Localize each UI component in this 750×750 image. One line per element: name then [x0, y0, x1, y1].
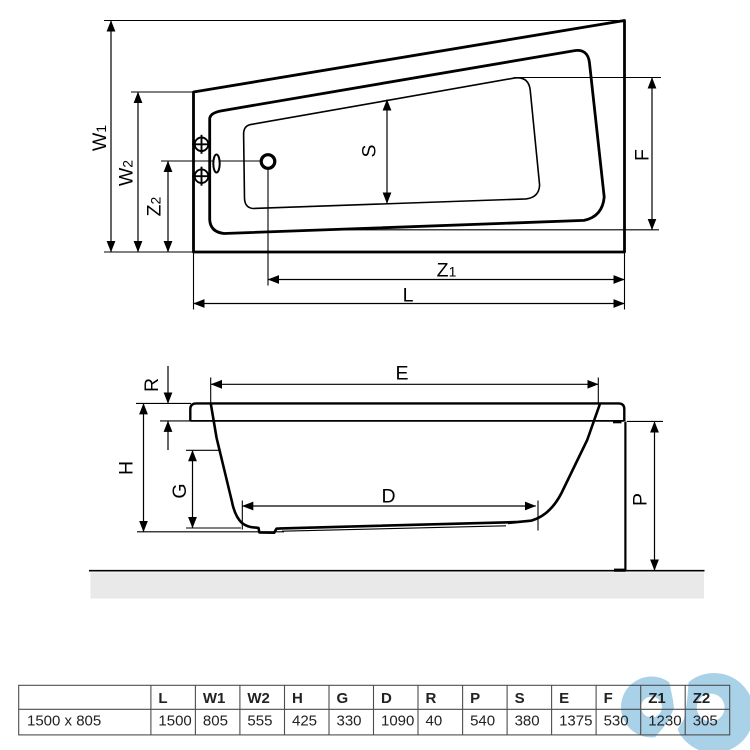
- svg-text:W1: W1: [203, 690, 226, 707]
- svg-text:S: S: [359, 144, 381, 157]
- svg-text:425: 425: [292, 713, 317, 730]
- svg-text:Z1: Z1: [648, 690, 666, 707]
- svg-text:G: G: [337, 690, 349, 707]
- svg-text:E: E: [559, 690, 569, 707]
- svg-text:L: L: [403, 285, 414, 307]
- svg-text:330: 330: [337, 713, 362, 730]
- svg-text:W1: W1: [89, 125, 111, 151]
- svg-text:E: E: [395, 363, 408, 385]
- svg-text:555: 555: [247, 713, 272, 730]
- svg-text:40: 40: [426, 713, 443, 730]
- svg-text:H: H: [292, 690, 303, 707]
- svg-text:1500: 1500: [158, 713, 191, 730]
- svg-text:805: 805: [203, 713, 228, 730]
- svg-text:P: P: [470, 690, 480, 707]
- svg-text:Z2: Z2: [693, 690, 711, 707]
- svg-text:1375: 1375: [559, 713, 592, 730]
- svg-text:G: G: [169, 483, 191, 498]
- svg-text:L: L: [158, 690, 167, 707]
- svg-text:W2: W2: [115, 160, 137, 186]
- svg-text:1090: 1090: [381, 713, 414, 730]
- svg-text:R: R: [426, 690, 437, 707]
- svg-text:P: P: [630, 493, 652, 506]
- svg-text:530: 530: [604, 713, 629, 730]
- svg-text:1500 x 805: 1500 x 805: [27, 713, 101, 730]
- svg-text:F: F: [604, 690, 613, 707]
- svg-text:380: 380: [515, 713, 540, 730]
- svg-text:1230: 1230: [648, 713, 681, 730]
- svg-text:W2: W2: [247, 690, 270, 707]
- svg-text:D: D: [381, 485, 395, 507]
- svg-text:F: F: [632, 149, 654, 161]
- svg-text:H: H: [116, 461, 138, 475]
- svg-text:R: R: [141, 378, 163, 392]
- svg-text:D: D: [381, 690, 392, 707]
- svg-text:305: 305: [693, 713, 718, 730]
- svg-text:Z2: Z2: [143, 196, 165, 216]
- svg-text:S: S: [515, 690, 525, 707]
- svg-text:Z1: Z1: [437, 260, 457, 282]
- svg-text:540: 540: [470, 713, 495, 730]
